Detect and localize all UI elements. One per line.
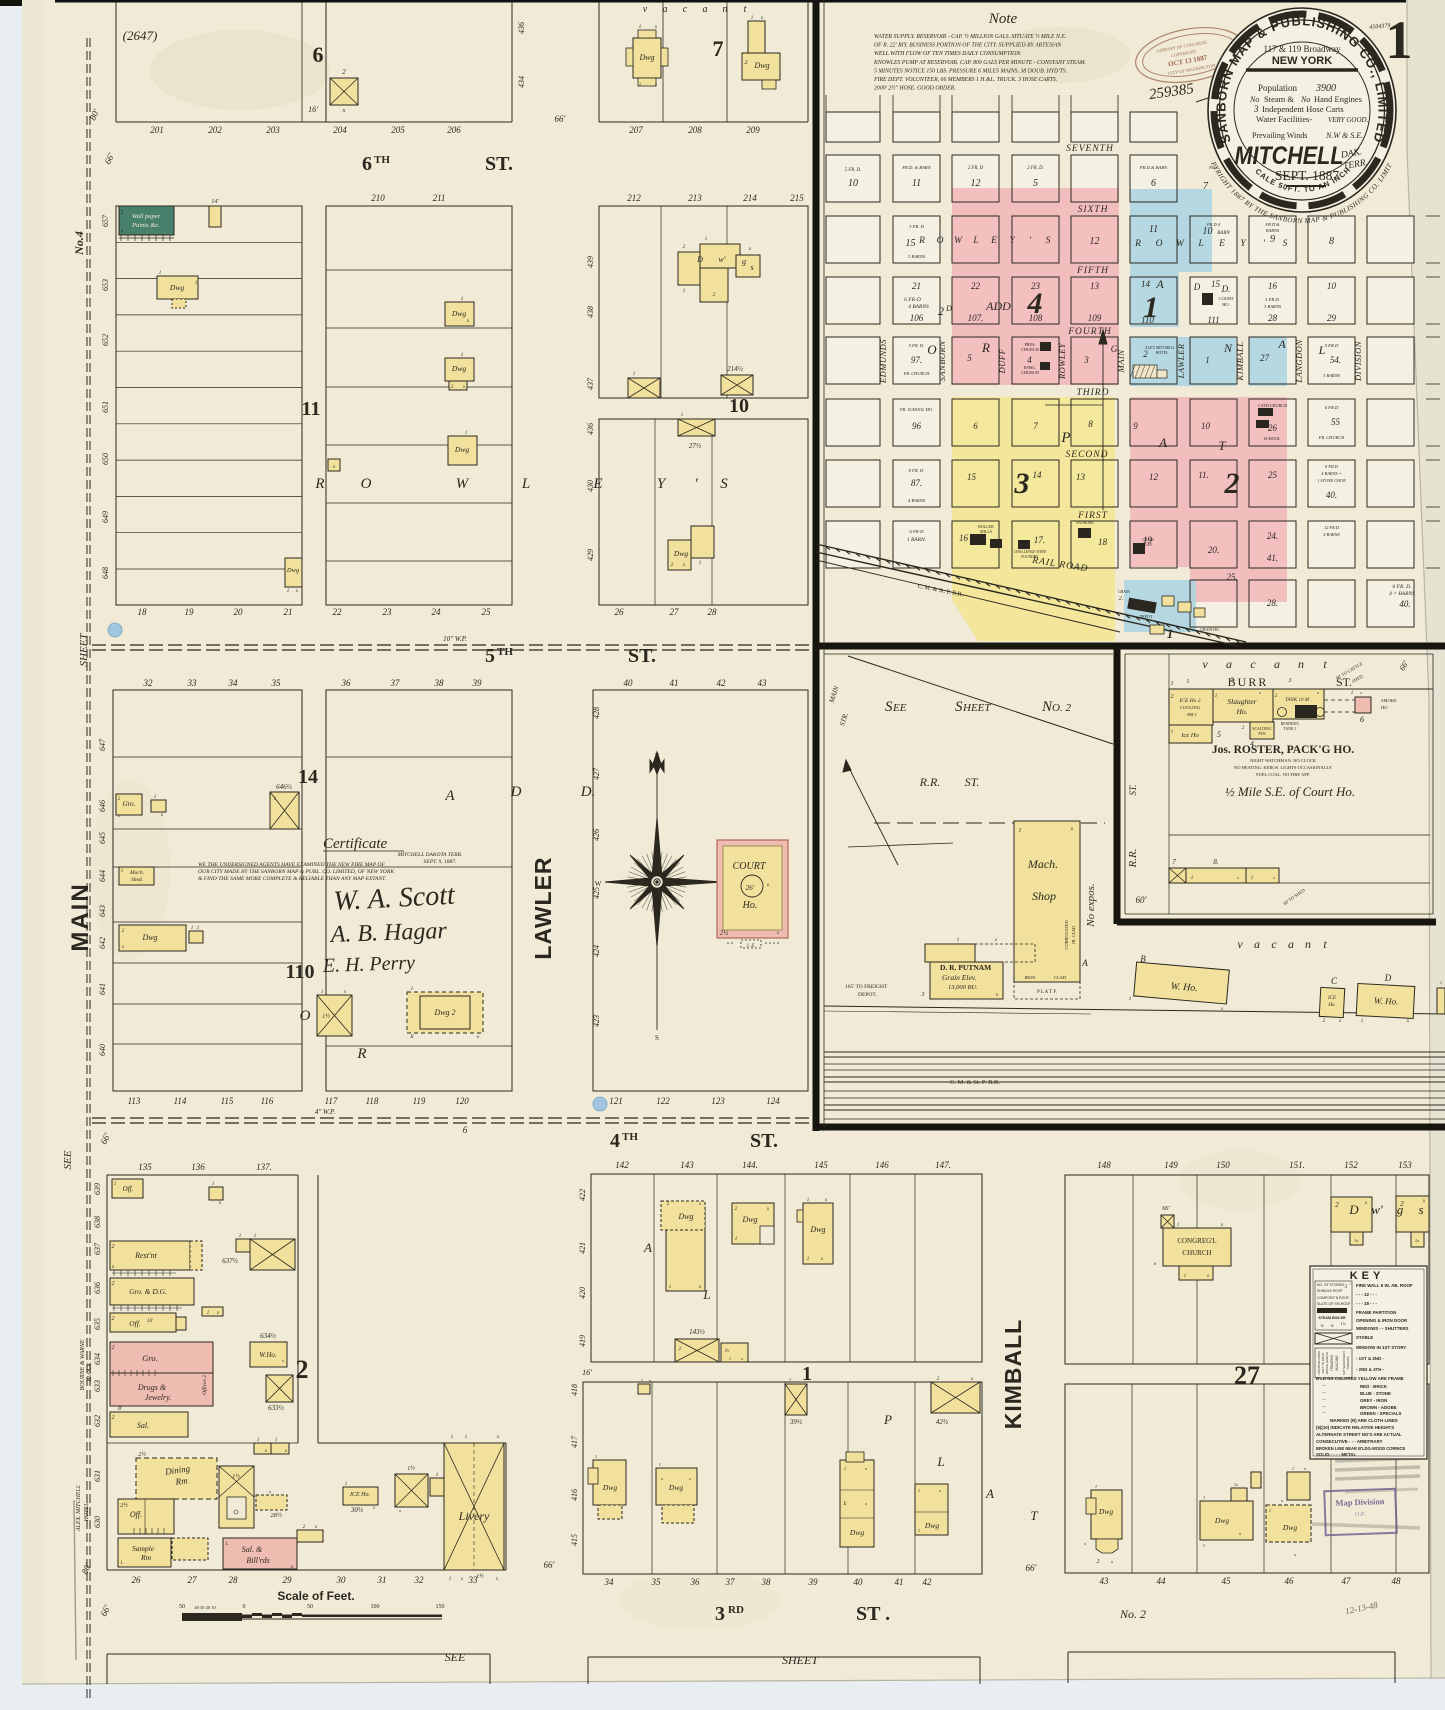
svg-text:30: 30 bbox=[336, 1575, 347, 1585]
svg-text:146: 146 bbox=[875, 1160, 889, 1170]
svg-text:121: 121 bbox=[609, 1096, 623, 1106]
svg-text:118: 118 bbox=[366, 1096, 379, 1106]
svg-text:BURR: BURR bbox=[1228, 675, 1269, 689]
svg-text:19: 19 bbox=[185, 607, 195, 617]
svg-text:639: 639 bbox=[93, 1183, 102, 1195]
svg-text:207: 207 bbox=[629, 125, 643, 135]
svg-text:30½: 30½ bbox=[350, 1506, 364, 1514]
svg-text:4: 4 bbox=[610, 1130, 620, 1152]
svg-text:35: 35 bbox=[271, 678, 282, 688]
svg-text:" ": " " bbox=[1322, 1385, 1326, 1389]
svg-text:D: D bbox=[696, 255, 703, 264]
svg-text:c: c bbox=[1271, 937, 1277, 951]
svg-text:Dwg: Dwg bbox=[638, 53, 654, 62]
svg-text:Slaughter: Slaughter bbox=[1227, 697, 1256, 706]
svg-text:Dwg: Dwg bbox=[602, 1483, 617, 1492]
svg-text:423: 423 bbox=[592, 1015, 601, 1027]
svg-text:10: 10 bbox=[1203, 226, 1213, 237]
svg-text:4 BARNS =: 4 BARNS = bbox=[1321, 471, 1342, 476]
svg-text:8: 8 bbox=[1088, 419, 1093, 429]
svg-text:NO HEATING. KEROS. LIGHTS OCC: NO HEATING. KEROS. LIGHTS OCCASIONALLY bbox=[1234, 765, 1333, 770]
svg-text:150: 150 bbox=[436, 1604, 445, 1610]
svg-text:IR. CLAD: IR. CLAD bbox=[1071, 925, 1076, 945]
svg-text:TANK 10 M: TANK 10 M bbox=[1285, 698, 1310, 703]
svg-text:S: S bbox=[655, 1034, 659, 1042]
svg-text:W. Ho.: W. Ho. bbox=[1374, 995, 1399, 1006]
svg-text:KIMBALL: KIMBALL bbox=[1235, 342, 1245, 382]
svg-text:FR.D. & BARN: FR.D. & BARN bbox=[901, 165, 932, 170]
svg-text:41.: 41. bbox=[1267, 553, 1278, 563]
svg-text:40: 40 bbox=[854, 1577, 864, 1587]
svg-text:20: 20 bbox=[234, 607, 244, 617]
svg-text:634: 634 bbox=[93, 1353, 102, 1365]
svg-text:ALEX. MITCHELL: ALEX. MITCHELL bbox=[76, 1484, 82, 1532]
svg-text:13: 13 bbox=[1076, 472, 1086, 482]
svg-text:2: 2 bbox=[1231, 677, 1234, 683]
svg-text:BLOCK: BLOCK bbox=[87, 1361, 93, 1381]
svg-text:427: 427 bbox=[592, 767, 601, 780]
svg-text:L: L bbox=[1318, 343, 1326, 357]
svg-text:37: 37 bbox=[725, 1577, 736, 1587]
svg-text:28: 28 bbox=[229, 1575, 239, 1585]
svg-text:Dwg: Dwg bbox=[286, 567, 300, 574]
svg-text:54.: 54. bbox=[1330, 355, 1341, 365]
svg-text:3: 3 bbox=[1014, 467, 1030, 500]
svg-text:v: v bbox=[1202, 657, 1208, 671]
svg-text:211: 211 bbox=[433, 193, 446, 203]
svg-text:Jewelry.: Jewelry. bbox=[145, 1393, 171, 1402]
svg-text:1: 1 bbox=[1251, 876, 1254, 881]
svg-text:3 BARNS: 3 BARNS bbox=[908, 254, 926, 259]
svg-text:1x: 1x bbox=[1415, 1238, 1419, 1243]
svg-text:2: 2 bbox=[1224, 467, 1240, 500]
svg-text:2: 2 bbox=[1097, 1559, 1100, 1565]
svg-text:114: 114 bbox=[174, 1096, 187, 1106]
svg-text:3: 3 bbox=[921, 992, 925, 998]
svg-text:1: 1 bbox=[239, 1234, 242, 1239]
svg-text:IRON: IRON bbox=[1025, 975, 1037, 980]
svg-text:TANK 1: TANK 1 bbox=[1283, 727, 1296, 731]
svg-text:2: 2 bbox=[112, 1316, 115, 1322]
svg-text:Gro.: Gro. bbox=[142, 1353, 158, 1363]
svg-text:Jos. ROSTER, PACK'G HO.: Jos. ROSTER, PACK'G HO. bbox=[1212, 744, 1354, 756]
svg-text:34: 34 bbox=[604, 1577, 615, 1587]
svg-text:634½: 634½ bbox=[260, 1332, 277, 1340]
svg-text:FR.D.& BARN: FR.D.& BARN bbox=[1139, 165, 1168, 170]
svg-text:Ice Ho: Ice Ho bbox=[1180, 732, 1199, 739]
svg-text:214½: 214½ bbox=[727, 365, 744, 373]
svg-text:ST.: ST. bbox=[485, 153, 513, 175]
svg-text:29: 29 bbox=[283, 1575, 293, 1585]
svg-text:RED - BRICK: RED - BRICK bbox=[1360, 1384, 1388, 1389]
svg-text:15: 15 bbox=[1211, 279, 1221, 289]
svg-text:6: 6 bbox=[1360, 715, 1364, 724]
svg-text:3 FR. D: 3 FR. D bbox=[909, 224, 924, 229]
svg-text:45: 45 bbox=[1222, 1576, 1232, 1586]
svg-text:7: 7 bbox=[1172, 858, 1176, 866]
svg-text:WHOLE LENGTH: WHOLE LENGTH bbox=[1325, 1352, 1329, 1374]
svg-text:Mach.: Mach. bbox=[129, 870, 144, 876]
svg-text:CHALLENGE WIND: CHALLENGE WIND bbox=[1014, 550, 1047, 554]
svg-text:3: 3 bbox=[1083, 355, 1089, 365]
svg-text:SHEET: SHEET bbox=[78, 633, 90, 667]
svg-text:4: 4 bbox=[1027, 287, 1043, 320]
svg-text:Gro. & D.G.: Gro. & D.G. bbox=[129, 1287, 167, 1296]
svg-text:1: 1 bbox=[918, 1488, 920, 1493]
svg-text:35: 35 bbox=[651, 1577, 662, 1587]
svg-text:BROWN - ADOBE: BROWN - ADOBE bbox=[1360, 1405, 1397, 1410]
svg-text:a: a bbox=[1226, 657, 1232, 671]
svg-text:E: E bbox=[842, 1502, 846, 1507]
svg-text:Dwg: Dwg bbox=[141, 933, 157, 942]
svg-text:209: 209 bbox=[746, 125, 760, 135]
svg-text:RD: RD bbox=[728, 1604, 744, 1616]
svg-text:W: W bbox=[456, 476, 470, 492]
svg-text:t: t bbox=[744, 4, 747, 15]
svg-text:1: 1 bbox=[1129, 997, 1132, 1002]
svg-text:2: 2 bbox=[745, 60, 748, 66]
svg-text:STEAM BOILER: STEAM BOILER bbox=[1318, 1316, 1346, 1320]
svg-text:NIGHT WATCHMAN. NO CLOCK: NIGHT WATCHMAN. NO CLOCK bbox=[1250, 758, 1317, 763]
svg-text:6: 6 bbox=[362, 153, 372, 175]
svg-text:x: x bbox=[342, 108, 346, 114]
svg-text:LAWLER: LAWLER bbox=[530, 856, 556, 959]
svg-text:O.P.: O.P. bbox=[1355, 1512, 1366, 1518]
svg-text:S: S bbox=[1283, 239, 1288, 249]
svg-text:1: 1 bbox=[1019, 828, 1022, 834]
svg-text:SANBORN: SANBORN bbox=[937, 340, 947, 382]
svg-text:147.: 147. bbox=[935, 1160, 951, 1170]
svg-text:B: B bbox=[1140, 954, 1146, 964]
svg-text:MITCHELL: MITCHELL bbox=[1235, 142, 1344, 170]
svg-text:633: 633 bbox=[93, 1380, 102, 1392]
svg-text:SIXTH: SIXTH bbox=[1078, 205, 1109, 215]
svg-text:6 FR.D: 6 FR.D bbox=[1325, 405, 1339, 410]
svg-text:31: 31 bbox=[377, 1575, 387, 1585]
svg-text:3: 3 bbox=[715, 1603, 725, 1625]
svg-text:1.: 1. bbox=[120, 1561, 124, 1566]
svg-text:Shop: Shop bbox=[1032, 889, 1056, 903]
svg-text:Ho.: Ho. bbox=[1327, 1003, 1335, 1008]
svg-text:ICE: ICE bbox=[1327, 996, 1336, 1001]
svg-text:6: 6 bbox=[973, 421, 978, 431]
svg-text:3900: 3900 bbox=[1315, 83, 1336, 94]
svg-text:TH: TH bbox=[622, 1131, 638, 1143]
svg-text:BLUE - STONE: BLUE - STONE bbox=[1360, 1391, 1391, 1396]
svg-text:5: 5 bbox=[1033, 178, 1038, 189]
svg-text:106: 106 bbox=[910, 313, 924, 323]
svg-text:5: 5 bbox=[485, 645, 495, 667]
svg-text:CONSECUTIVE - - - ARBI: CONSECUTIVE - - - ARBITRARY bbox=[1316, 1439, 1383, 1444]
svg-text:1: 1 bbox=[1205, 355, 1210, 365]
svg-text:16': 16' bbox=[582, 1368, 592, 1377]
svg-text:EDMUNDS: EDMUNDS bbox=[878, 339, 888, 384]
svg-text:HOTEL: HOTEL bbox=[84, 1502, 90, 1523]
svg-text:FIFTH: FIFTH bbox=[1076, 266, 1109, 276]
svg-text:O: O bbox=[1156, 239, 1163, 249]
svg-text:1: 1 bbox=[1171, 681, 1174, 687]
svg-text:25: 25 bbox=[482, 607, 492, 617]
svg-text:VERY GOOD.: VERY GOOD. bbox=[1328, 116, 1369, 124]
svg-text:WINDOWS - - SHUTTERS: WINDOWS - - SHUTTERS bbox=[1356, 1326, 1409, 1331]
svg-text:L: L bbox=[702, 1287, 710, 1302]
svg-text:Dwg: Dwg bbox=[753, 61, 769, 70]
svg-text:434: 434 bbox=[517, 76, 526, 88]
svg-text:KNOWLES PUMP AT RESERVOIR. CAP: KNOWLES PUMP AT RESERVOIR. CAP. 800 GALS… bbox=[873, 60, 1086, 66]
svg-text:- 1ST & 2ND -: - 1ST & 2ND - bbox=[1356, 1356, 1384, 1361]
svg-text:1: 1 bbox=[659, 1462, 661, 1467]
svg-text:27: 27 bbox=[670, 607, 680, 617]
svg-text:OPENING & IRON DOOR: OPENING & IRON DOOR bbox=[1356, 1318, 1408, 1323]
svg-text:EE: EE bbox=[892, 702, 907, 714]
svg-text:422: 422 bbox=[578, 1189, 587, 1201]
svg-text:637: 637 bbox=[93, 1242, 102, 1255]
svg-text:ICE Ho.: ICE Ho. bbox=[349, 1492, 370, 1498]
svg-text:203: 203 bbox=[266, 125, 280, 135]
svg-text:SMOKE: SMOKE bbox=[1381, 698, 1397, 703]
svg-text:FR. SCHOOL HO.: FR. SCHOOL HO. bbox=[899, 407, 933, 412]
svg-text:135: 135 bbox=[138, 1162, 152, 1172]
svg-text:1: 1 bbox=[807, 1198, 810, 1203]
svg-text:42: 42 bbox=[717, 678, 727, 688]
svg-text:652: 652 bbox=[101, 334, 110, 346]
svg-text:644: 644 bbox=[98, 870, 107, 882]
svg-text:1: 1 bbox=[114, 1182, 117, 1187]
svg-text:416: 416 bbox=[570, 1489, 579, 1501]
svg-text:OUR CITY MADE BY THE SANBORN M: OUR CITY MADE BY THE SANBORN MAP & PUBL.… bbox=[198, 869, 394, 875]
svg-text:A: A bbox=[1277, 337, 1286, 351]
svg-text:50: 50 bbox=[179, 1604, 185, 1610]
svg-text:GRAIN HO.: GRAIN HO. bbox=[1200, 628, 1219, 632]
svg-text:438: 438 bbox=[586, 306, 595, 318]
svg-text:SEPT. 9, 1887.: SEPT. 9, 1887. bbox=[424, 859, 457, 865]
svg-text:FR. CHURCH: FR. CHURCH bbox=[903, 371, 930, 376]
svg-text:646½: 646½ bbox=[276, 783, 293, 791]
svg-text:7: 7 bbox=[713, 36, 724, 61]
svg-text:BOURNE & WARNE: BOURNE & WARNE bbox=[80, 1339, 86, 1390]
svg-text:w': w' bbox=[1371, 1202, 1383, 1217]
svg-text:1: 1 bbox=[159, 271, 162, 276]
svg-text:28½: 28½ bbox=[270, 1512, 282, 1519]
svg-text:439: 439 bbox=[586, 256, 595, 268]
svg-text:HO.: HO. bbox=[1222, 302, 1230, 307]
svg-text:SEVENTH: SEVENTH bbox=[1066, 144, 1114, 154]
svg-text:O: O bbox=[361, 476, 372, 492]
svg-text:40.: 40. bbox=[1399, 599, 1410, 609]
svg-text:143½: 143½ bbox=[689, 1328, 706, 1336]
svg-text:149: 149 bbox=[1164, 1160, 1178, 1170]
svg-text:1: 1 bbox=[274, 797, 277, 802]
svg-text:16: 16 bbox=[1268, 281, 1278, 291]
svg-text:39: 39 bbox=[472, 678, 483, 688]
svg-text:4 BARNS: 4 BARNS bbox=[908, 303, 929, 310]
svg-text:210: 210 bbox=[371, 193, 385, 203]
svg-text:W: W bbox=[954, 236, 963, 246]
svg-text:N: N bbox=[655, 753, 660, 759]
svg-text:635: 635 bbox=[93, 1318, 102, 1330]
svg-text:Water Facilities-: Water Facilities- bbox=[1256, 114, 1312, 124]
svg-text:L: L bbox=[521, 476, 530, 492]
svg-text:Off.: Off. bbox=[130, 1510, 142, 1519]
svg-text:Map Division: Map Division bbox=[1335, 1496, 1384, 1508]
svg-text:36: 36 bbox=[690, 1577, 701, 1587]
svg-text:110: 110 bbox=[286, 961, 315, 983]
svg-text:6 FR-D: 6 FR-D bbox=[910, 529, 925, 534]
svg-text:107.: 107. bbox=[968, 313, 984, 323]
svg-text:647: 647 bbox=[98, 738, 107, 751]
svg-text:66': 66' bbox=[1162, 1206, 1170, 1212]
svg-text:N: N bbox=[1223, 341, 1233, 355]
svg-text:O: O bbox=[927, 342, 937, 357]
svg-text:641: 641 bbox=[98, 983, 107, 995]
svg-text:630: 630 bbox=[93, 1516, 102, 1528]
svg-text:42½: 42½ bbox=[936, 1418, 949, 1426]
svg-text:Livery: Livery bbox=[458, 1509, 490, 1523]
svg-text:LANGDON: LANGDON bbox=[1294, 339, 1304, 384]
svg-text:5: 5 bbox=[967, 353, 972, 363]
svg-text:Off.: Off. bbox=[129, 1319, 141, 1328]
svg-text:" ": " " bbox=[1322, 1406, 1326, 1410]
svg-text:FUEL COAL. NO FIRE APP.: FUEL COAL. NO FIRE APP. bbox=[1256, 772, 1310, 777]
svg-text:1: 1 bbox=[705, 237, 708, 242]
svg-text:1: 1 bbox=[287, 589, 290, 594]
svg-text:1½: 1½ bbox=[232, 1473, 240, 1480]
svg-text:w': w' bbox=[718, 255, 725, 264]
svg-text:11: 11 bbox=[1149, 224, 1158, 235]
svg-text:W.Ho.: W.Ho. bbox=[259, 1351, 276, 1359]
svg-text:(5)(10) INDICATE RELATIVE HEIG: (5)(10) INDICATE RELATIVE HEIGHTS bbox=[1316, 1425, 1394, 1430]
svg-text:2000' 2½" HOSE. GOOD ORDER.: 2000' 2½" HOSE. GOOD ORDER. bbox=[874, 85, 956, 92]
svg-text:⅝: ⅝ bbox=[1331, 1323, 1334, 1328]
svg-text:66': 66' bbox=[544, 1560, 556, 1570]
svg-text:BARN: BARN bbox=[1217, 231, 1230, 236]
svg-text:637½: 637½ bbox=[222, 1257, 239, 1265]
svg-text:WELL WITH FLOW OF TEN TIMES DA: WELL WITH FLOW OF TEN TIMES DAILY CONSUM… bbox=[874, 51, 1022, 57]
svg-text:WINDOW IN 1ST STORY: WINDOW IN 1ST STORY bbox=[1356, 1345, 1406, 1350]
svg-text:1½: 1½ bbox=[476, 1573, 484, 1580]
svg-text:SCHOOL: SCHOOL bbox=[1264, 436, 1281, 441]
svg-text:32: 32 bbox=[414, 1575, 425, 1585]
svg-text:28.: 28. bbox=[1267, 598, 1278, 608]
svg-text:D: D bbox=[510, 784, 522, 800]
svg-text:Dwg: Dwg bbox=[169, 283, 184, 292]
svg-text:C: C bbox=[1331, 976, 1338, 986]
svg-text:4 = BARNS: 4 = BARNS bbox=[1389, 590, 1415, 597]
svg-text:1: 1 bbox=[699, 561, 702, 566]
svg-text:10" W.P.: 10" W.P. bbox=[443, 635, 467, 643]
svg-text:2½: 2½ bbox=[120, 1502, 128, 1509]
svg-text:0: 0 bbox=[243, 1604, 246, 1610]
svg-text:COMPOSIT'N ROOF: COMPOSIT'N ROOF bbox=[1317, 1296, 1349, 1300]
svg-text:Sal.: Sal. bbox=[137, 1421, 149, 1430]
svg-text:27: 27 bbox=[1260, 353, 1270, 363]
svg-text:9: 9 bbox=[1270, 234, 1275, 245]
svg-text:W: W bbox=[595, 880, 602, 888]
svg-text:48: 48 bbox=[1392, 1576, 1402, 1586]
svg-text:26': 26' bbox=[746, 884, 755, 892]
svg-text:THIRD: THIRD bbox=[1077, 388, 1110, 398]
svg-text:16': 16' bbox=[147, 1319, 154, 1324]
svg-text:SEPT. 1887: SEPT. 1887 bbox=[1275, 168, 1340, 183]
svg-text:425: 425 bbox=[592, 887, 601, 899]
svg-text:2½: 2½ bbox=[720, 929, 730, 937]
svg-text:418: 418 bbox=[570, 1384, 579, 1396]
svg-text:Dwg: Dwg bbox=[454, 445, 469, 454]
svg-text:151.: 151. bbox=[1289, 1160, 1305, 1170]
svg-text:3: 3 bbox=[1288, 678, 1292, 684]
svg-text:41: 41 bbox=[895, 1577, 904, 1587]
svg-text:642: 642 bbox=[98, 937, 107, 949]
svg-text:Scale of Feet.: Scale of Feet. bbox=[277, 1589, 354, 1603]
svg-text:109: 109 bbox=[1088, 313, 1102, 323]
svg-text:1 STONE CHUR: 1 STONE CHUR bbox=[1317, 478, 1346, 483]
svg-text:12: 12 bbox=[971, 178, 981, 189]
svg-text:FOURTH: FOURTH bbox=[1067, 327, 1112, 337]
svg-text:10: 10 bbox=[848, 178, 858, 189]
svg-text:632: 632 bbox=[93, 1415, 102, 1427]
svg-text:1.: 1. bbox=[225, 1542, 229, 1547]
svg-text:66': 66' bbox=[1026, 1563, 1038, 1573]
svg-text:1: 1 bbox=[751, 16, 754, 21]
svg-text:- 2ND & 4TH -: - 2ND & 4TH - bbox=[1356, 1367, 1385, 1372]
svg-text:87.: 87. bbox=[911, 478, 922, 488]
svg-text:PRES.: PRES. bbox=[1024, 342, 1035, 347]
svg-text:144.: 144. bbox=[742, 1160, 758, 1170]
svg-text:R.R.: R.R. bbox=[919, 775, 941, 789]
svg-text:4" W.P.: 4" W.P. bbox=[315, 1108, 336, 1116]
svg-text:43: 43 bbox=[1100, 1576, 1110, 1586]
svg-text:MAIN: MAIN bbox=[1116, 349, 1126, 374]
svg-text:SEE: SEE bbox=[62, 1150, 74, 1169]
svg-text:145: 145 bbox=[814, 1160, 828, 1170]
svg-text:A: A bbox=[1155, 277, 1164, 291]
svg-text:O: O bbox=[1052, 702, 1060, 714]
svg-text:10: 10 bbox=[1201, 421, 1211, 431]
svg-text:631: 631 bbox=[93, 1470, 102, 1482]
svg-text:1½: 1½ bbox=[322, 1013, 330, 1020]
svg-text:1: 1 bbox=[681, 413, 684, 418]
svg-text:1: 1 bbox=[254, 1234, 257, 1239]
svg-text:206: 206 bbox=[447, 125, 461, 135]
svg-text:O: O bbox=[937, 236, 944, 246]
svg-text:BARNS: BARNS bbox=[1266, 228, 1280, 233]
svg-text:ALTERNATE STREET NO'S ARE ACTU: ALTERNATE STREET NO'S ARE ACTUAL bbox=[1316, 1432, 1402, 1437]
svg-text:27½: 27½ bbox=[689, 442, 702, 450]
svg-text:GREEN - SPECIALS: GREEN - SPECIALS bbox=[1360, 1411, 1402, 1416]
svg-text:NOT NECESSARILY: NOT NECESSARILY bbox=[1342, 1351, 1346, 1375]
svg-text:COURT: COURT bbox=[1219, 296, 1234, 301]
svg-text:646: 646 bbox=[98, 800, 107, 812]
svg-text:150: 150 bbox=[1216, 1160, 1230, 1170]
svg-text:Bill'rds: Bill'rds bbox=[246, 1556, 269, 1565]
svg-text:ICE Ho 2: ICE Ho 2 bbox=[1178, 698, 1200, 704]
svg-text:Sal. &: Sal. & bbox=[242, 1545, 263, 1554]
svg-text:40.: 40. bbox=[1326, 490, 1337, 500]
svg-text:CATH CHURCH: CATH CHURCH bbox=[1258, 403, 1287, 408]
svg-text:Dwg 2: Dwg 2 bbox=[433, 1008, 455, 1017]
svg-text:a: a bbox=[1274, 657, 1280, 671]
svg-text:Dwg: Dwg bbox=[809, 1225, 825, 1234]
svg-text:201: 201 bbox=[150, 125, 164, 135]
svg-text:436: 436 bbox=[517, 22, 526, 34]
svg-text:D: D bbox=[945, 304, 952, 313]
svg-text:27: 27 bbox=[1234, 1361, 1260, 1390]
svg-text:1: 1 bbox=[1167, 626, 1174, 641]
svg-text:66': 66' bbox=[555, 114, 567, 124]
svg-text:FIRE WALL 6 IN. AB. ROOF: FIRE WALL 6 IN. AB. ROOF bbox=[1356, 1283, 1413, 1288]
svg-text:LOCATING FROM: LOCATING FROM bbox=[1317, 1351, 1321, 1375]
svg-text:1⅓: 1⅓ bbox=[1341, 1321, 1346, 1326]
